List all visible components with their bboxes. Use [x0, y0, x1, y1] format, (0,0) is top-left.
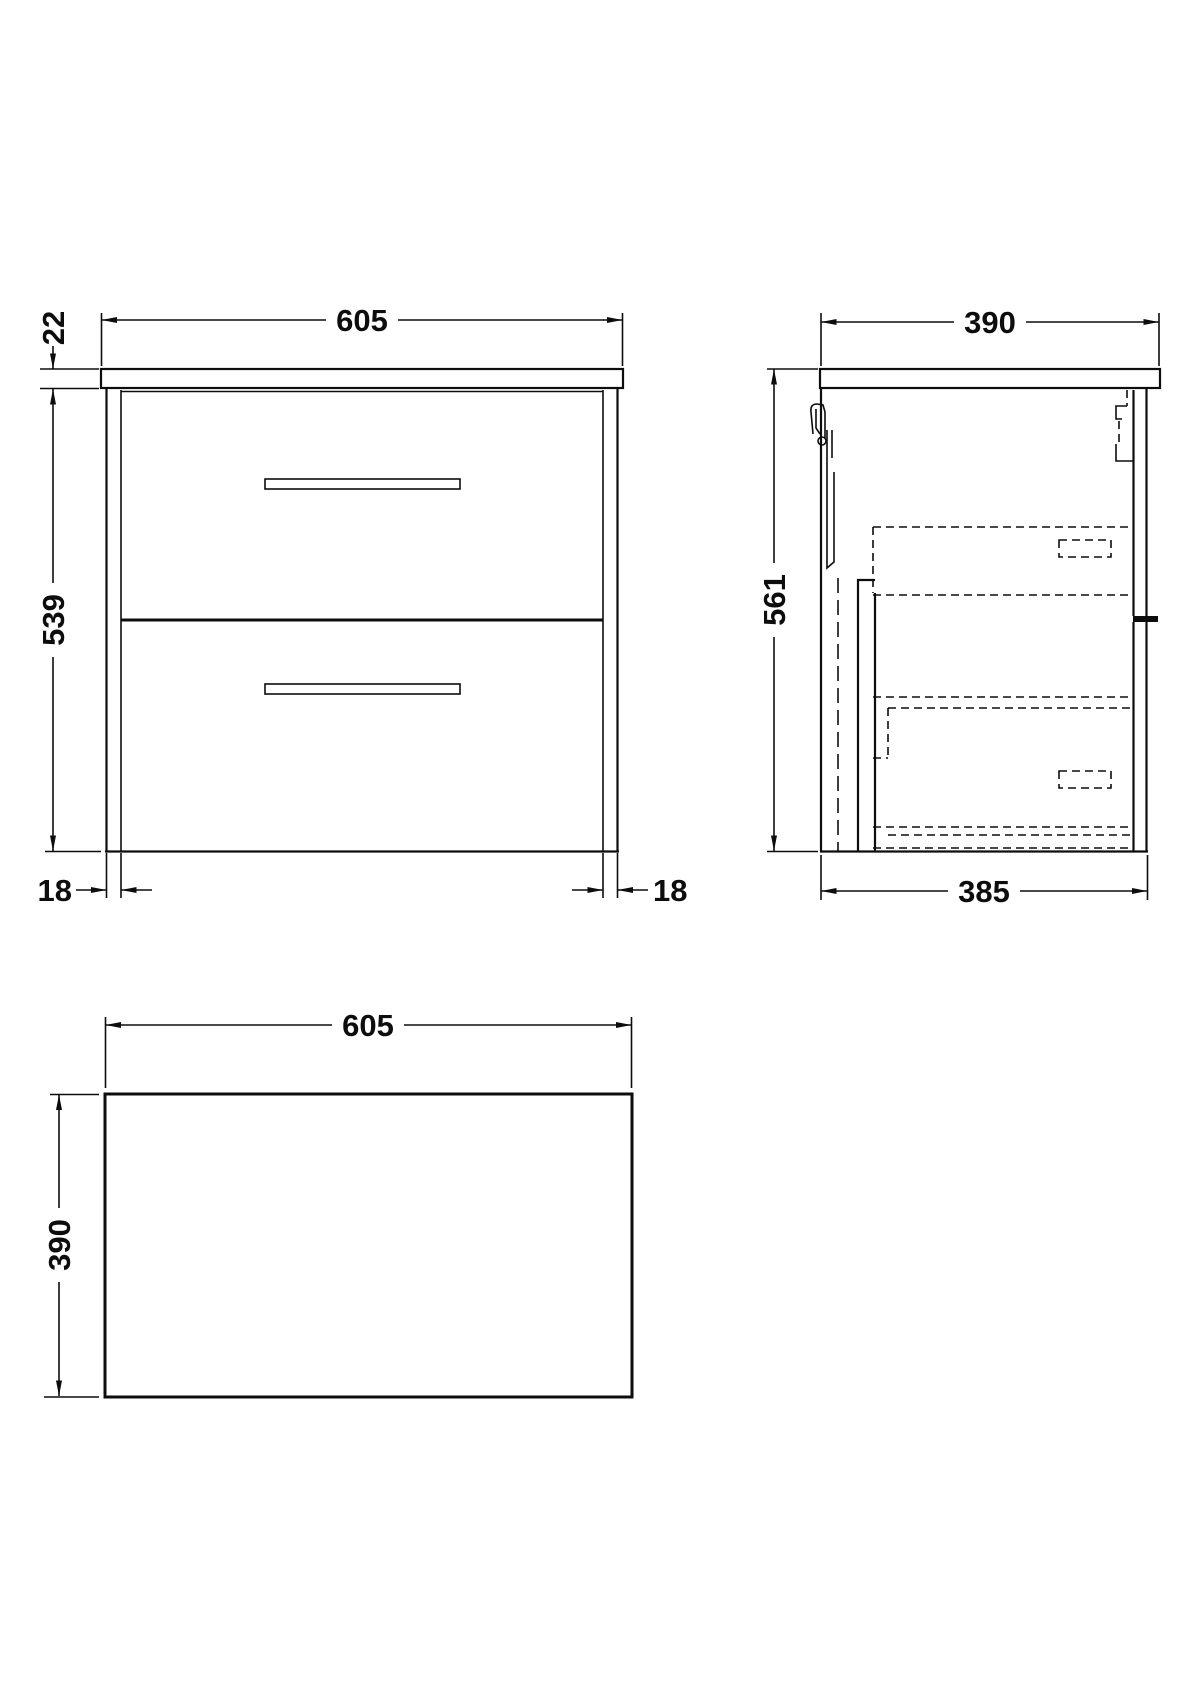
- front-dim-panel-right-label: 18: [653, 873, 687, 908]
- plan-dim-depth-label: 390: [42, 1219, 77, 1271]
- side-dim-depth-bottom-label: 385: [958, 874, 1010, 909]
- front-countertop: [101, 369, 623, 388]
- side-lower-drawer: [873, 697, 1132, 848]
- front-dim-width: 605: [102, 303, 623, 366]
- side-upper-drawer-handle: [1059, 540, 1111, 557]
- plan-dim-depth: 390: [42, 1095, 99, 1398]
- front-dim-counter-thickness: 22: [36, 311, 99, 389]
- plan-dim-width-label: 605: [342, 1008, 394, 1043]
- side-dim-height-label: 561: [757, 574, 792, 626]
- front-drawer2-handle: [265, 684, 460, 694]
- front-dim-panel-left-label: 18: [38, 873, 72, 908]
- side-back-structure: [838, 527, 875, 851]
- front-dim-panel-right: 18: [572, 853, 687, 908]
- drawing-svg: 605 22 539 18: [0, 0, 1200, 1698]
- side-dim-depth-top-label: 390: [964, 305, 1016, 340]
- side-view: 390 561 385: [757, 305, 1160, 909]
- plan-dim-width: 605: [106, 1008, 632, 1088]
- side-drawer-front-gap: [1133, 616, 1158, 622]
- side-dim-height: 561: [757, 369, 818, 852]
- plan-view: 605 390: [42, 1008, 632, 1397]
- front-view: 605 22 539 18: [36, 303, 688, 908]
- front-drawer1-handle: [265, 479, 460, 489]
- side-lower-drawer-handle: [1059, 771, 1111, 788]
- front-dim-panel-left: 18: [38, 853, 152, 908]
- front-dim-height-label: 539: [36, 594, 71, 646]
- front-dim-counter-thickness-label: 22: [36, 311, 71, 345]
- side-dim-depth-top: 390: [821, 305, 1159, 366]
- side-dim-depth-bottom: 385: [821, 855, 1148, 909]
- front-cabinet-body: [105, 388, 619, 852]
- front-dim-height: 539: [36, 389, 101, 852]
- plan-countertop-outline: [105, 1094, 632, 1397]
- side-front-face: [1133, 388, 1158, 851]
- front-dim-width-label: 605: [336, 303, 388, 338]
- side-upper-drawer: [873, 527, 1132, 595]
- wall-bracket-icon: [811, 404, 834, 568]
- technical-drawing-page: 605 22 539 18: [0, 0, 1200, 1698]
- side-top-bracket: [1116, 390, 1133, 461]
- side-countertop: [820, 369, 1160, 388]
